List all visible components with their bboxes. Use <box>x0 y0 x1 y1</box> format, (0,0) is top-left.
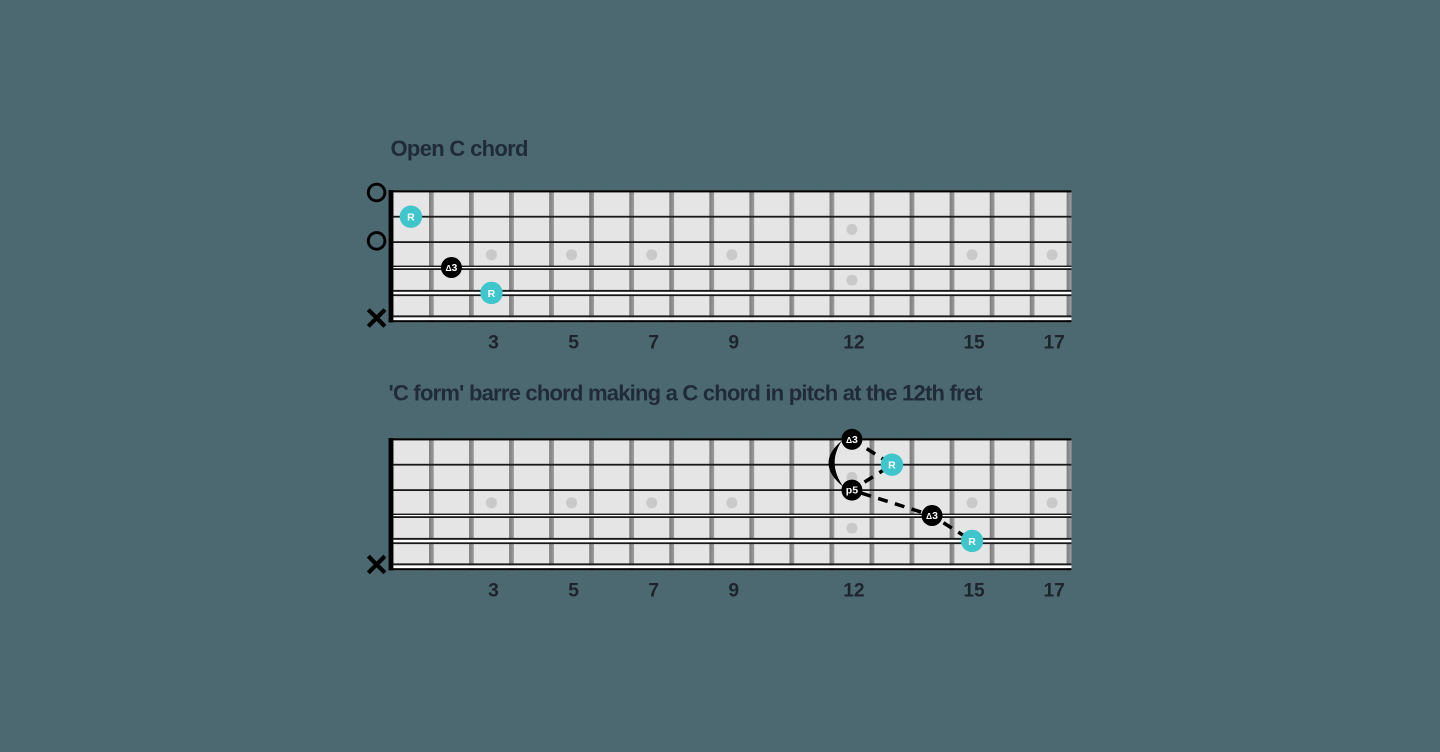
svg-text:3: 3 <box>488 581 499 602</box>
svg-text:15: 15 <box>963 581 985 602</box>
svg-text:Δ3: Δ3 <box>846 434 858 446</box>
svg-text:12: 12 <box>843 581 864 602</box>
svg-text:12: 12 <box>843 333 864 354</box>
svg-text:5: 5 <box>568 581 579 602</box>
svg-text:Open C chord: Open C chord <box>391 136 528 161</box>
svg-text:R: R <box>888 460 896 472</box>
svg-text:9: 9 <box>728 581 739 602</box>
svg-text:Δ3: Δ3 <box>445 262 457 274</box>
svg-text:7: 7 <box>648 581 659 602</box>
svg-text:9: 9 <box>728 333 739 354</box>
svg-text:5: 5 <box>568 333 579 354</box>
svg-text:'C form' barre chord making a: 'C form' barre chord making a C chord in… <box>389 381 984 406</box>
svg-text:17: 17 <box>1043 333 1064 354</box>
svg-text:R: R <box>488 288 496 300</box>
svg-text:Δ3: Δ3 <box>926 510 938 522</box>
svg-text:R: R <box>968 536 976 548</box>
svg-text:3: 3 <box>488 333 499 354</box>
svg-text:7: 7 <box>648 333 659 354</box>
svg-text:17: 17 <box>1043 581 1064 602</box>
svg-text:p5: p5 <box>846 485 858 497</box>
svg-text:15: 15 <box>963 333 985 354</box>
svg-text:R: R <box>407 212 415 224</box>
